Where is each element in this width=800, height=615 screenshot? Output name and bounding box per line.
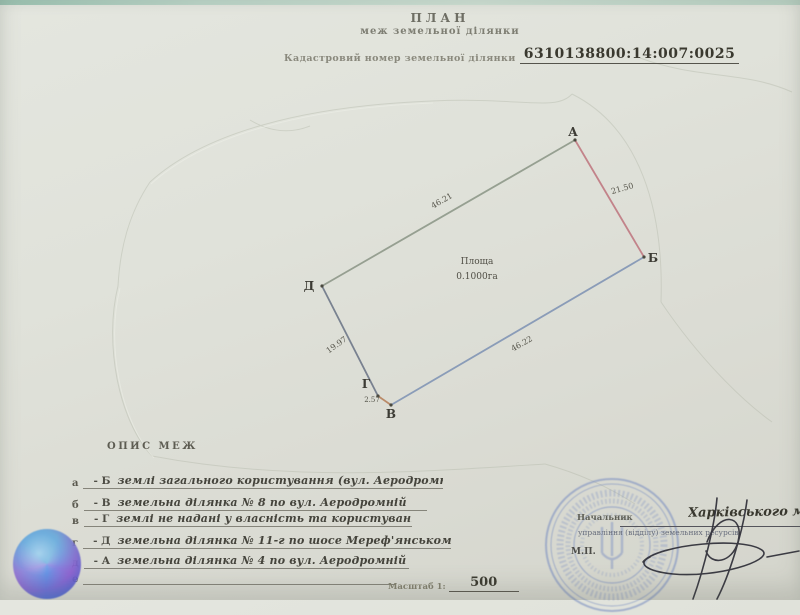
boundary-row: б - В земельна ділянка № 8 по вул. Аерод… [72, 496, 427, 511]
row-text: землі не надані у власність та користува… [116, 512, 412, 525]
seal-place-mark: М.П. [571, 547, 596, 557]
vertex-label-b: Б [648, 251, 658, 265]
side-ab [575, 140, 644, 257]
row-letter: в [72, 517, 79, 527]
row-prefix: - В [94, 497, 111, 509]
row-letter: б [72, 501, 79, 511]
row-line: - Г землі не надані у власність та корис… [84, 512, 412, 527]
signature [595, 480, 800, 600]
boundary-row: д - А земельна ділянка № 4 по вул. Аерод… [72, 554, 409, 569]
vertex-label-d: Д [304, 279, 315, 293]
scale-row: Масштаб 1: 500 [388, 575, 519, 592]
area-label: Площа [461, 257, 494, 267]
area-value: 0.1000га [456, 272, 498, 282]
hologram-seal [13, 529, 81, 599]
side-length-da: 46.21 [430, 191, 454, 210]
row-line: - Д земельна ділянка № 11-г по шосе Мере… [83, 534, 451, 549]
scale-value: 500 [449, 575, 519, 592]
row-line [83, 571, 395, 585]
side-da [322, 140, 575, 286]
row-prefix: - Б [93, 475, 110, 487]
boundary-row: в - Г землі не надані у власність та кор… [72, 512, 412, 527]
side-bv [391, 257, 644, 405]
vertex-label-g: Г [362, 377, 371, 391]
boundary-row: е [72, 571, 395, 585]
row-text: земельна ділянка № 8 по вул. Аеродромній [118, 496, 407, 509]
vertex-point-b [642, 255, 645, 258]
row-text: землі загального користування (вул. Аеро… [117, 474, 443, 487]
boundaries-heading: ОПИС МЕЖ [107, 441, 198, 452]
side-length-ab: 21.50 [610, 181, 634, 196]
row-line: - Б землі загального користування (вул. … [83, 474, 443, 489]
scanned-land-plan-page: { "header": { "title": "ПЛАН", "subtitle… [0, 0, 800, 600]
row-line: - В земельна ділянка № 8 по вул. Аеродро… [84, 496, 427, 511]
side-length-bv: 46.22 [510, 334, 534, 353]
vertex-label-a: А [568, 125, 578, 139]
row-text: земельна ділянка № 4 по вул. Аеродромній [117, 554, 406, 567]
scale-label: Масштаб 1: [388, 582, 446, 592]
boundary-row: г - Д земельна ділянка № 11-г по шосе Ме… [72, 534, 451, 549]
row-text: земельна ділянка № 11-г по шосе Мереф'ян… [118, 534, 452, 547]
side-length-gd: 19.97 [325, 335, 349, 356]
row-prefix: - Г [94, 513, 109, 525]
side-vg [378, 396, 391, 405]
row-line: - А земельна ділянка № 4 по вул. Аеродро… [84, 554, 409, 569]
row-letter: а [72, 479, 78, 489]
boundary-row: а - Б землі загального користування (вул… [72, 474, 443, 489]
vertex-label-v: В [386, 407, 396, 421]
row-prefix: - А [94, 555, 111, 567]
row-prefix: - Д [93, 535, 110, 547]
side-length-vg: 2.57 [364, 396, 380, 404]
vertex-point-d [320, 284, 323, 287]
